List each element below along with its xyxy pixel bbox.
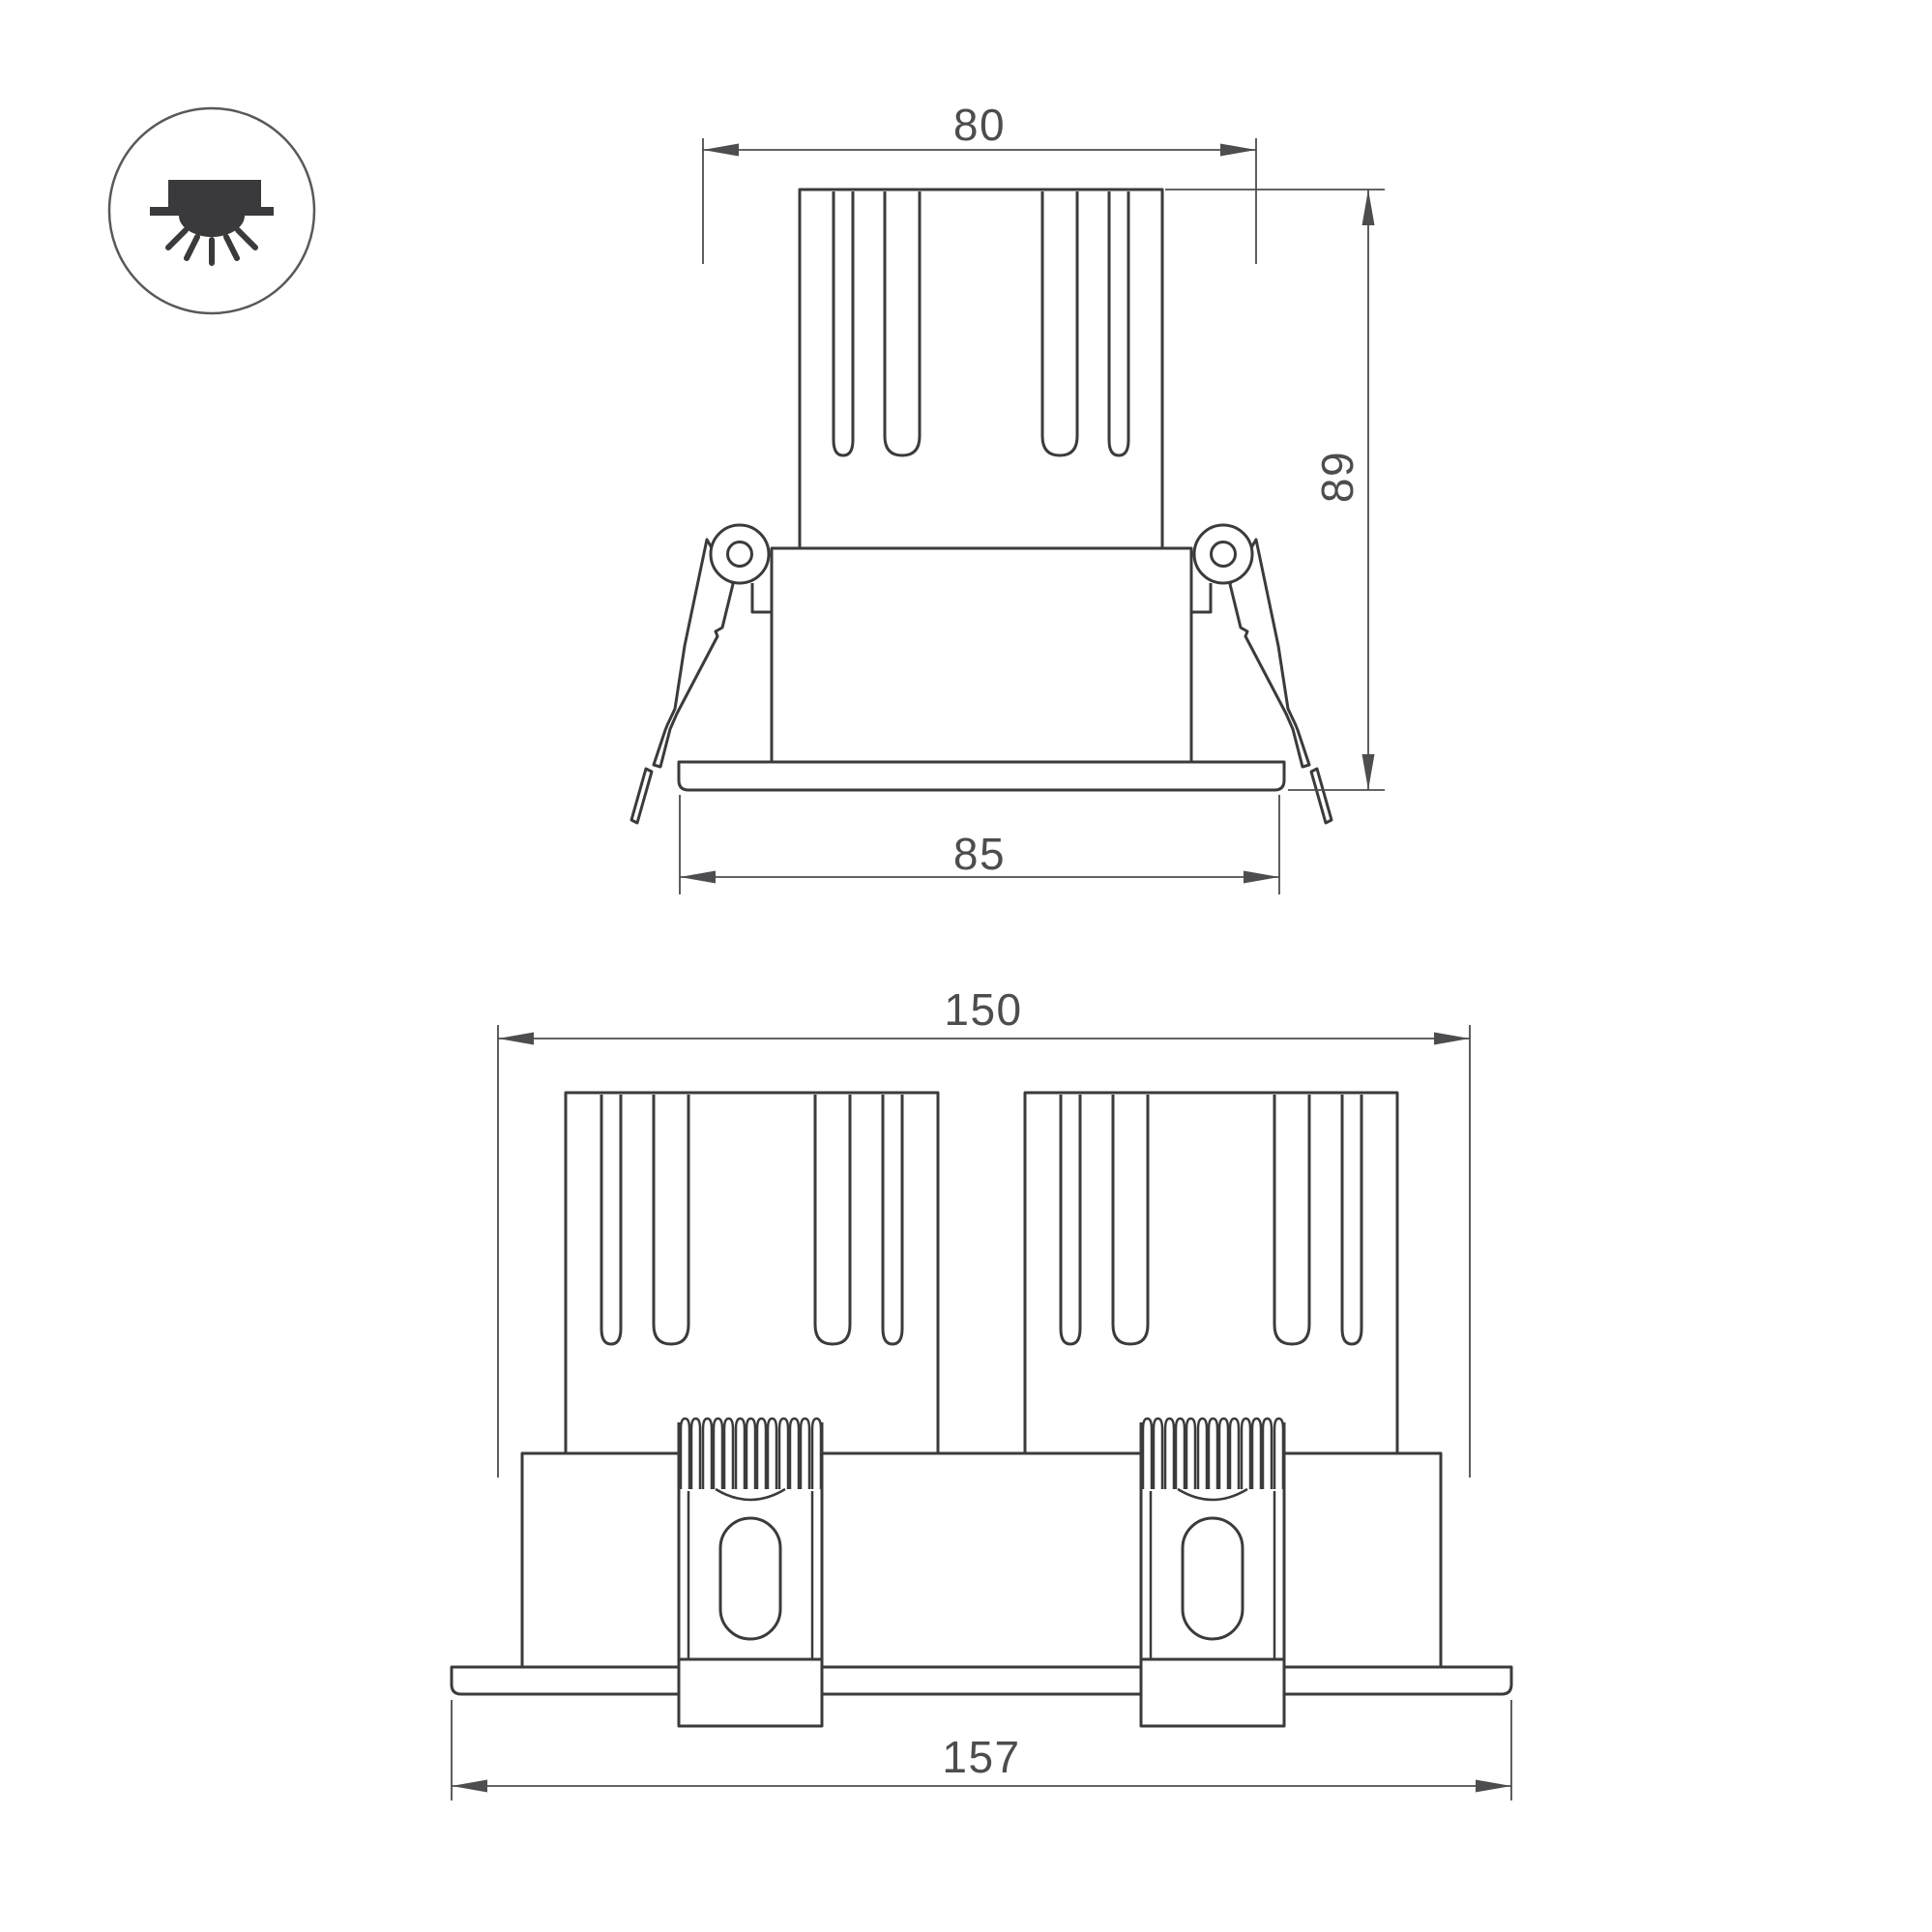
dim-label-85: 85 xyxy=(953,829,1006,879)
trim-flange-double xyxy=(452,1667,1511,1694)
spring-bracket-right xyxy=(1140,1417,1285,1726)
dim-label-80: 80 xyxy=(953,100,1006,150)
icon-ceiling-bar xyxy=(150,207,274,216)
clip-pivot-hole xyxy=(728,542,752,567)
lamp-body-single xyxy=(772,548,1191,762)
trim-flange-single xyxy=(679,762,1284,790)
drawing-sheet: 80 89 85 150 157 xyxy=(0,0,1932,1932)
bracket-foot xyxy=(1141,1659,1284,1726)
dim-label-150: 150 xyxy=(944,984,1022,1035)
dim-label-157: 157 xyxy=(942,1732,1020,1782)
technical-drawing: 80 89 85 150 157 xyxy=(0,0,1932,1932)
bracket-slot-hole xyxy=(720,1518,780,1639)
clip-pivot-hole xyxy=(1212,542,1236,567)
product-type-badge xyxy=(109,108,314,313)
bracket-foot xyxy=(679,1659,822,1726)
dim-label-89: 89 xyxy=(1312,451,1362,503)
frame-body-double xyxy=(522,1453,1441,1667)
bracket-slot-hole xyxy=(1183,1518,1243,1639)
spring-bracket-left xyxy=(678,1417,823,1726)
icon-lamp-body xyxy=(168,180,261,207)
